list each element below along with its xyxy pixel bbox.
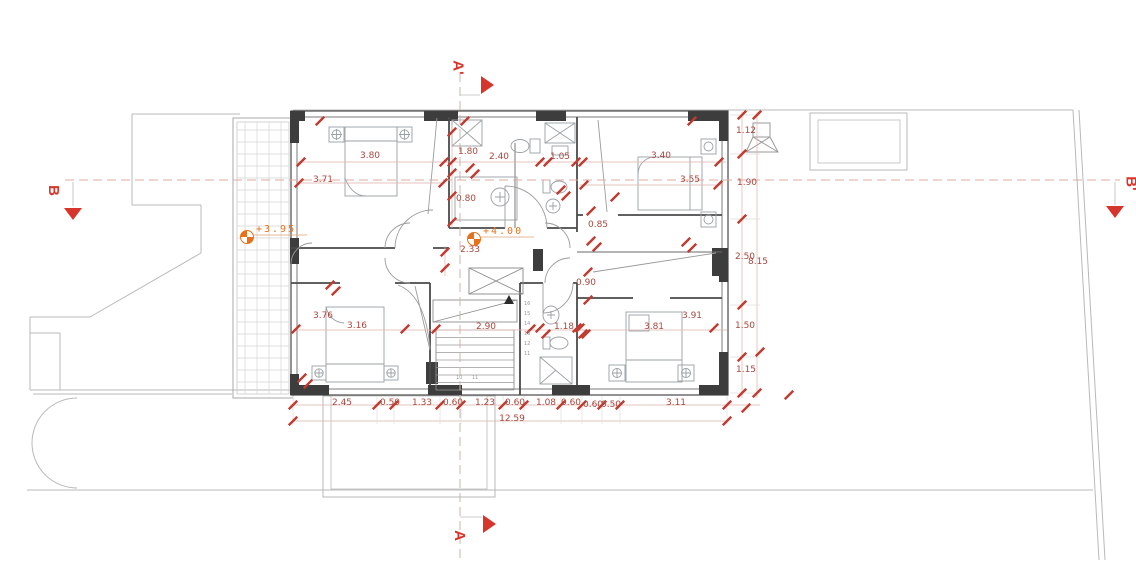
dimension-label: 3.55	[680, 176, 700, 185]
dimension-label: 0.60	[561, 399, 581, 408]
stair-step-number: 13	[524, 332, 530, 337]
dimension-label: 2.90	[476, 323, 496, 332]
dimension-label: 3.81	[644, 323, 664, 332]
floor-plan-canvas: A' A B B' 3.803.711.802.401.053.403.550.…	[0, 0, 1136, 576]
dimension-label: 0.80	[456, 195, 476, 204]
dimension-label: 3.76	[313, 312, 333, 321]
dimension-label: 1.12	[736, 127, 756, 136]
stair-step-number: 15	[524, 312, 530, 317]
dimension-label: 12.59	[499, 415, 525, 424]
dimension-label: 3.71	[313, 176, 333, 185]
terrace	[233, 118, 293, 398]
section-label-b-prime: B'	[1124, 176, 1136, 190]
dimension-label: 0.50	[601, 401, 621, 410]
dimension-label: 1.05	[550, 153, 570, 162]
level-marker-label: +4.00	[483, 227, 523, 237]
section-label-a: A	[452, 530, 467, 541]
stair-step-number: 10	[456, 376, 462, 381]
dimension-label: 1.80	[458, 148, 478, 157]
section-a-prime-arrow	[481, 76, 494, 94]
dimension-label: 1.18	[554, 323, 574, 332]
stair-step-number: 11	[524, 352, 530, 357]
section-b-arrow	[64, 208, 82, 220]
floor-plan-drawing	[0, 0, 1136, 576]
dimension-label: 3.11	[666, 399, 686, 408]
stair-step-number: 14	[524, 322, 530, 327]
dimension-label: 1.15	[736, 366, 756, 375]
dimension-label: 1.23	[475, 399, 495, 408]
section-label-b: B	[46, 185, 61, 196]
stair-step-number: 12	[524, 342, 530, 347]
dimension-label: 1.90	[737, 179, 757, 188]
dimension-label: 8.15	[748, 258, 768, 267]
dimension-label: 0.50	[380, 399, 400, 408]
section-b-prime-arrow	[1106, 206, 1124, 218]
section-a-arrow	[483, 515, 496, 533]
dimension-label: 0.90	[576, 279, 596, 288]
dimension-label: 1.33	[412, 399, 432, 408]
dimension-label: 1.08	[536, 399, 556, 408]
dimension-label: 3.80	[360, 152, 380, 161]
dimension-label: 0.60	[505, 399, 525, 408]
dimension-label: 2.40	[489, 153, 509, 162]
dimension-label: 1.50	[735, 322, 755, 331]
dimension-label: 0.85	[588, 221, 608, 230]
dimension-label: 2.45	[332, 399, 352, 408]
dimension-label: 3.16	[347, 322, 367, 331]
dimension-label: 3.91	[682, 312, 702, 321]
section-label-a-prime: A'	[451, 60, 466, 74]
level-marker-label: +3.95	[256, 225, 296, 235]
dimension-label: 2.33	[460, 246, 480, 255]
stair-step-number: 16	[524, 302, 530, 307]
dimension-label: 0.60	[443, 399, 463, 408]
dimension-label: 3.40	[651, 152, 671, 161]
stair-step-number: 11	[472, 376, 478, 381]
